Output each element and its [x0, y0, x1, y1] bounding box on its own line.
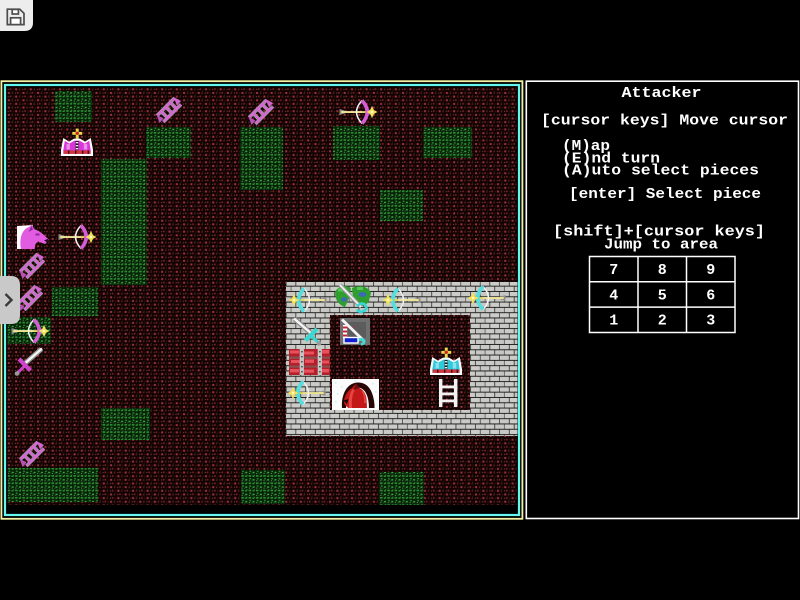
- svg-text:4: 4: [609, 287, 618, 304]
- svg-text:(A)uto select pieces: (A)uto select pieces: [562, 163, 759, 180]
- svg-text:9: 9: [706, 262, 715, 279]
- svg-text:3: 3: [706, 313, 715, 330]
- svg-text:[cursor keys] Move cursor: [cursor keys] Move cursor: [541, 113, 788, 130]
- svg-text:5: 5: [658, 287, 667, 304]
- svg-text:1: 1: [609, 313, 618, 330]
- svg-text:6: 6: [706, 287, 715, 304]
- svg-text:8: 8: [658, 262, 667, 279]
- svg-text:7: 7: [609, 262, 618, 279]
- svg-text:2: 2: [658, 313, 667, 330]
- svg-text:Attacker: Attacker: [622, 85, 702, 102]
- svg-text:Jump to area: Jump to area: [604, 237, 718, 254]
- svg-text:[enter] Select piece: [enter] Select piece: [569, 186, 761, 203]
